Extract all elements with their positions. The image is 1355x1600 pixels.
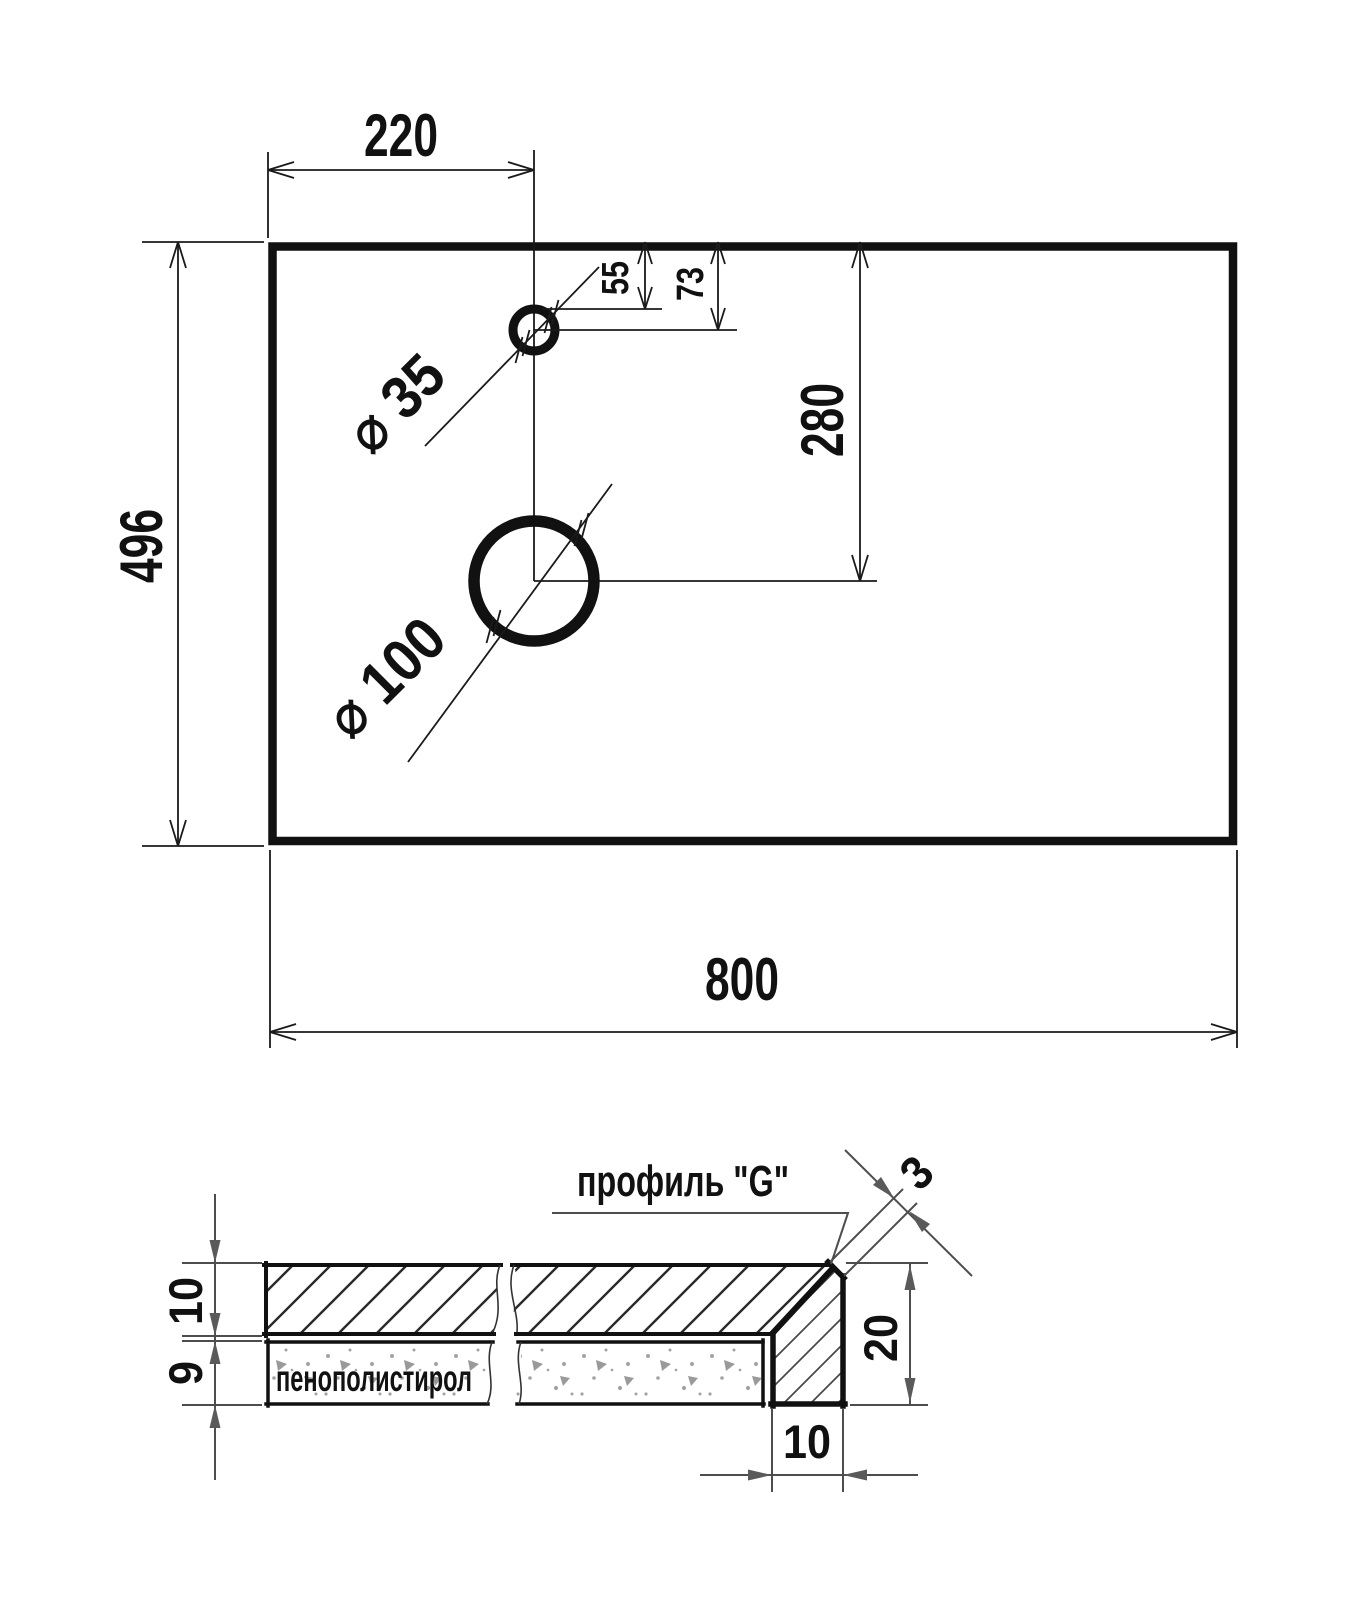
dim-height: 496 <box>108 242 264 846</box>
drawing-sheet: 220 496 55 73 <box>0 0 1355 1600</box>
section-view: пенополистирол <box>159 1145 972 1492</box>
profile-callout: профиль "G" <box>552 1157 848 1264</box>
arrowhead <box>210 1341 221 1364</box>
section-left-top-layer <box>264 1263 501 1336</box>
dim-label-chamfer: 3 <box>889 1145 943 1199</box>
dim-label-foam-thickness: 9 <box>159 1361 212 1385</box>
dim-label-hole-top-edge: 55 <box>595 261 637 295</box>
dim-label-edge-width: 10 <box>783 1415 831 1468</box>
dim-label-drain-center: 280 <box>789 383 856 457</box>
dim-edge-height: 20 <box>846 1263 928 1405</box>
arrowhead <box>905 1378 916 1403</box>
dim-chamfer: 3 <box>830 1145 972 1276</box>
dim-label-hole-offset: 220 <box>364 102 438 169</box>
leader-line <box>552 1213 848 1264</box>
foam-label: пенополистирол <box>276 1358 472 1399</box>
profile-label: профиль "G" <box>577 1157 789 1206</box>
arrowhead <box>748 1470 772 1481</box>
dim-width: 800 <box>270 850 1237 1048</box>
arrowhead <box>210 1405 221 1428</box>
dim-label-height: 496 <box>108 509 175 583</box>
section-right-foam-layer <box>516 1340 764 1406</box>
dim-layer-thickness: 10 9 <box>159 1194 262 1480</box>
arrowhead <box>843 1470 867 1481</box>
plan-view: 220 496 55 73 <box>108 102 1237 1048</box>
dim-label-top-thickness: 10 <box>159 1277 212 1325</box>
dim-label-width: 800 <box>705 946 779 1013</box>
section-left-foam-layer: пенополистирол <box>266 1340 493 1406</box>
arrowhead <box>210 1240 221 1263</box>
dim-label-hole-center: 73 <box>670 267 712 301</box>
dim-hole-offset: 220 <box>268 102 534 238</box>
dim-label-edge-height: 20 <box>854 1314 907 1362</box>
dim-edge-width: 10 <box>700 1408 918 1492</box>
arrowhead <box>905 1265 916 1290</box>
arrowhead <box>909 1211 930 1232</box>
technical-drawing: 220 496 55 73 <box>0 0 1355 1600</box>
